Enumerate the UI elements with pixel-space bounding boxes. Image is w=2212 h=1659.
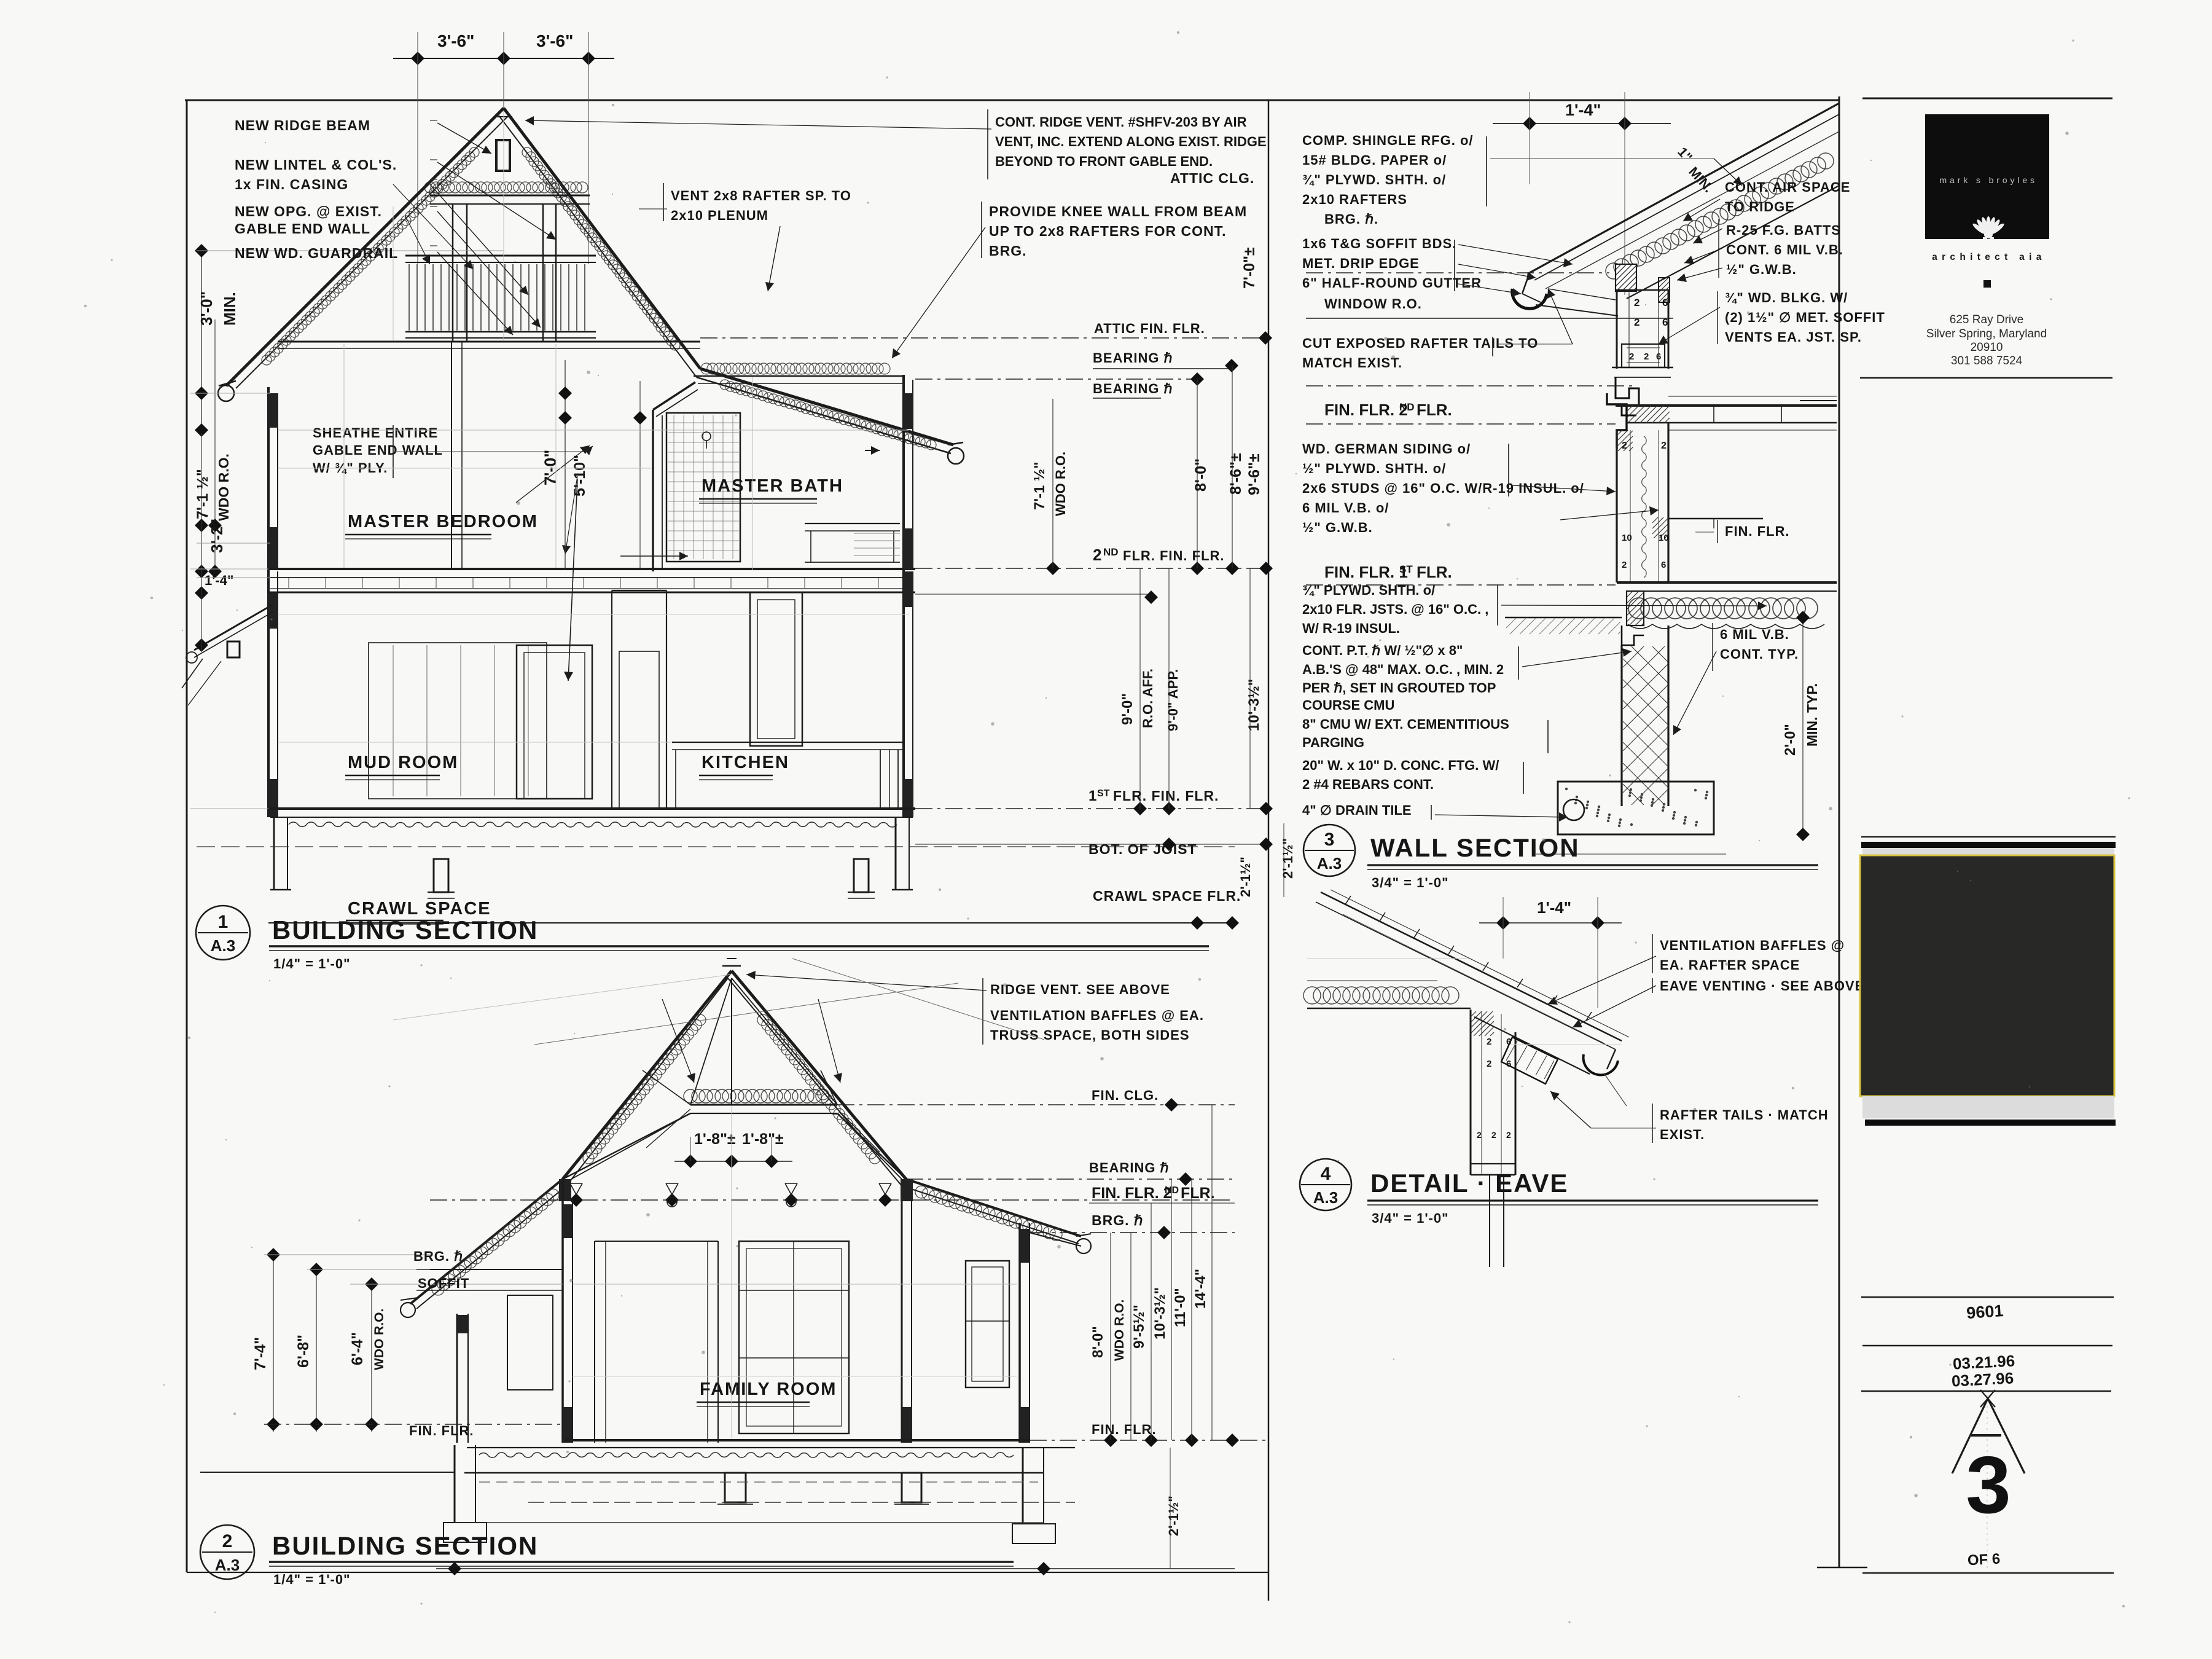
svg-text:PARGING: PARGING <box>1302 735 1364 750</box>
svg-text:FIN. FLR.: FIN. FLR. <box>1725 524 1790 539</box>
svg-text:3'-6": 3'-6" <box>437 31 474 50</box>
svg-text:1x FIN. CASING: 1x FIN. CASING <box>235 176 348 192</box>
svg-text:BRG. ℏ: BRG. ℏ <box>1092 1212 1143 1228</box>
svg-text:TO RIDGE: TO RIDGE <box>1725 199 1795 214</box>
svg-text:7'-1 ½": 7'-1 ½" <box>194 469 211 519</box>
svg-text:1'-8"±: 1'-8"± <box>694 1131 736 1148</box>
svg-text:FIN. FLR. 2: FIN. FLR. 2 <box>1092 1185 1172 1202</box>
svg-text:FIN. CLG.: FIN. CLG. <box>1092 1088 1159 1103</box>
svg-text:3'-2": 3'-2" <box>208 519 226 553</box>
svg-text:9'-6"±: 9'-6"± <box>1246 453 1263 495</box>
svg-text:7'-0"±: 7'-0"± <box>1241 247 1258 289</box>
svg-text:MET. DRIP EDGE: MET. DRIP EDGE <box>1302 256 1420 271</box>
svg-text:11'-0": 11'-0" <box>1172 1288 1189 1327</box>
svg-text:3/4" = 1'-0": 3/4" = 1'-0" <box>1372 1210 1449 1226</box>
svg-text:2'-1½": 2'-1½" <box>1238 857 1253 897</box>
svg-text:WD. GERMAN SIDING o/: WD. GERMAN SIDING o/ <box>1302 441 1471 457</box>
svg-text:BRG.: BRG. <box>989 243 1027 259</box>
svg-text:CONT. RIDGE VENT. #SHFV-203 BY: CONT. RIDGE VENT. #SHFV-203 BY AIR <box>995 114 1247 130</box>
svg-text:20910: 20910 <box>1971 341 2003 354</box>
svg-text:FIN. FLR.: FIN. FLR. <box>409 1423 474 1438</box>
svg-text:2x6 STUDS @ 16" O.C. W/R-19 IN: 2x6 STUDS @ 16" O.C. W/R-19 INSUL. o/ <box>1302 480 1584 496</box>
svg-text:½" G.W.B.: ½" G.W.B. <box>1302 520 1373 535</box>
svg-text:3'-0": 3'-0" <box>197 291 216 326</box>
svg-text:¾" WD. BLKG. W/: ¾" WD. BLKG. W/ <box>1725 290 1848 305</box>
svg-text:FLR.: FLR. <box>1417 401 1452 419</box>
svg-text:CONT. TYP.: CONT. TYP. <box>1720 646 1799 662</box>
svg-text:14'-4": 14'-4" <box>1192 1269 1209 1309</box>
svg-text:VENTILATION BAFFLES @: VENTILATION BAFFLES @ <box>1660 938 1845 953</box>
svg-text:R.O. AFF.: R.O. AFF. <box>1140 669 1155 728</box>
svg-text:FIN. FLR. 1: FIN. FLR. 1 <box>1324 563 1408 581</box>
svg-text:TRUSS SPACE, BOTH SIDES: TRUSS SPACE, BOTH SIDES <box>990 1027 1190 1043</box>
svg-text:ND: ND <box>1399 401 1415 413</box>
svg-text:CONT. AIR SPACE: CONT. AIR SPACE <box>1725 179 1850 195</box>
svg-text:6'-4": 6'-4" <box>349 1332 366 1365</box>
svg-text:15# BLDG. PAPER o/: 15# BLDG. PAPER o/ <box>1302 152 1447 168</box>
svg-text:8'-6"±: 8'-6"± <box>1227 453 1245 495</box>
svg-text:BRG. ℏ.: BRG. ℏ. <box>1324 211 1378 227</box>
svg-text:SOFFIT: SOFFIT <box>418 1276 469 1291</box>
svg-text:FLR. FIN. FLR.: FLR. FIN. FLR. <box>1113 788 1219 804</box>
svg-text:2: 2 <box>1487 1037 1491 1047</box>
svg-text:2: 2 <box>1622 441 1627 451</box>
svg-text:1/4" = 1'-0": 1/4" = 1'-0" <box>273 956 351 971</box>
svg-text:GABLE END WALL: GABLE END WALL <box>313 442 443 458</box>
svg-text:2: 2 <box>1491 1130 1496 1140</box>
svg-text:10'-3½": 10'-3½" <box>1246 679 1262 731</box>
svg-text:NEW OPG. @ EXIST.: NEW OPG. @ EXIST. <box>235 203 382 219</box>
svg-text:BUILDING SECTION: BUILDING SECTION <box>272 916 538 944</box>
svg-text:2x10 RAFTERS: 2x10 RAFTERS <box>1302 192 1407 207</box>
svg-text:FIN. FLR.: FIN. FLR. <box>1092 1422 1157 1437</box>
svg-text:4: 4 <box>1321 1164 1331 1184</box>
svg-text:9'-0": 9'-0" <box>1119 693 1136 725</box>
svg-text:5'-10": 5'-10" <box>571 455 588 496</box>
svg-text:8'-0": 8'-0" <box>1090 1326 1106 1358</box>
svg-text:EXIST.: EXIST. <box>1660 1127 1705 1142</box>
svg-text:2x10 PLENUM: 2x10 PLENUM <box>671 208 768 223</box>
svg-text:A.3: A.3 <box>211 936 235 955</box>
svg-text:301 588 7524: 301 588 7524 <box>1951 355 2023 367</box>
svg-text:2: 2 <box>1629 351 1634 362</box>
svg-text:RAFTER TAILS · MATCH: RAFTER TAILS · MATCH <box>1660 1107 1829 1123</box>
svg-text:BOT. OF JOIST: BOT. OF JOIST <box>1088 841 1197 857</box>
svg-text:1'-8"±: 1'-8"± <box>742 1131 784 1148</box>
svg-text:8" CMU W/ EXT. CEMENTITIOUS: 8" CMU W/ EXT. CEMENTITIOUS <box>1302 716 1509 732</box>
svg-text:2: 2 <box>1644 351 1649 362</box>
svg-text:2: 2 <box>1477 1130 1482 1140</box>
svg-text:2x10 FLR. JSTS. @ 16" O.C. ,: 2x10 FLR. JSTS. @ 16" O.C. , <box>1302 602 1488 617</box>
svg-text:WINDOW R.O.: WINDOW R.O. <box>1324 296 1422 312</box>
svg-text:RIDGE VENT. SEE ABOVE: RIDGE VENT. SEE ABOVE <box>990 982 1170 997</box>
svg-text:1/4" = 1'-0": 1/4" = 1'-0" <box>273 1572 351 1587</box>
svg-text:1'-4": 1'-4" <box>205 573 233 588</box>
svg-text:BUILDING SECTION: BUILDING SECTION <box>272 1531 538 1560</box>
svg-text:m a r k s b r o y l e s: m a r k s b r o y l e s <box>1939 175 2034 185</box>
svg-text:2'-1½": 2'-1½" <box>1166 1496 1181 1536</box>
svg-text:1'-4": 1'-4" <box>1565 101 1601 119</box>
svg-text:FLR. FIN. FLR.: FLR. FIN. FLR. <box>1123 548 1225 563</box>
svg-text:7'-4": 7'-4" <box>252 1337 269 1370</box>
svg-text:a r c h i t e c t a i a: a r c h i t e c t a i a <box>1932 252 2042 262</box>
svg-text:MATCH EXIST.: MATCH EXIST. <box>1302 355 1402 371</box>
svg-text:A.3: A.3 <box>1317 854 1342 873</box>
svg-text:¾" PLYWD. SHTH. o/: ¾" PLYWD. SHTH. o/ <box>1302 582 1435 598</box>
svg-text:ND: ND <box>1103 546 1119 558</box>
svg-text:2: 2 <box>1622 560 1627 570</box>
svg-text:6: 6 <box>1662 297 1668 308</box>
svg-text:OF 6: OF 6 <box>1967 1551 2001 1569</box>
svg-text:WALL SECTION: WALL SECTION <box>1370 833 1580 862</box>
svg-text:ST: ST <box>1097 788 1110 799</box>
svg-text:R-25 F.G. BATTS: R-25 F.G. BATTS <box>1726 222 1841 238</box>
svg-text:1'-4": 1'-4" <box>1537 898 1571 917</box>
svg-text:2: 2 <box>222 1531 233 1551</box>
svg-text:BEARING ℏ: BEARING ℏ <box>1093 381 1173 396</box>
svg-text:WDO R.O.: WDO R.O. <box>216 453 232 521</box>
svg-text:ATTIC FIN. FLR.: ATTIC FIN. FLR. <box>1094 321 1205 336</box>
svg-text:A.3: A.3 <box>1313 1188 1338 1207</box>
svg-text:KITCHEN: KITCHEN <box>702 753 789 772</box>
svg-text:2 #4 REBARS CONT.: 2 #4 REBARS CONT. <box>1302 777 1434 792</box>
svg-text:NEW RIDGE BEAM: NEW RIDGE BEAM <box>235 117 370 133</box>
svg-text:NEW WD. GUARDRAIL: NEW WD. GUARDRAIL <box>235 245 398 261</box>
svg-text:03.27.96: 03.27.96 <box>1951 1368 2014 1390</box>
svg-text:WDO R.O.: WDO R.O. <box>1053 452 1068 516</box>
svg-text:Silver Spring, Maryland: Silver Spring, Maryland <box>1926 327 2047 340</box>
svg-text:2: 2 <box>1093 546 1101 564</box>
svg-text:6 MIL V.B. o/: 6 MIL V.B. o/ <box>1302 500 1389 516</box>
svg-text:A.3: A.3 <box>215 1556 240 1574</box>
svg-text:1": 1" <box>1675 144 1695 165</box>
svg-text:CONT. 6 MIL V.B.: CONT. 6 MIL V.B. <box>1726 242 1843 257</box>
svg-text:MASTER BATH: MASTER BATH <box>702 476 843 496</box>
svg-text:FLR.: FLR. <box>1417 563 1452 581</box>
svg-text:2: 2 <box>1661 441 1667 451</box>
svg-text:½" G.W.B.: ½" G.W.B. <box>1726 262 1797 277</box>
svg-text:SHEATHE ENTIRE: SHEATHE ENTIRE <box>313 425 438 441</box>
svg-text:6: 6 <box>1656 351 1661 362</box>
svg-text:3: 3 <box>1966 1440 2011 1530</box>
svg-text:MASTER BEDROOM: MASTER BEDROOM <box>348 512 538 531</box>
svg-text:FLR.: FLR. <box>1181 1185 1215 1202</box>
svg-text:COURSE CMU: COURSE CMU <box>1302 697 1394 713</box>
svg-text:8'-0": 8'-0" <box>1192 458 1210 492</box>
svg-text:FIN. FLR. 2: FIN. FLR. 2 <box>1324 401 1408 419</box>
svg-text:ND: ND <box>1165 1185 1179 1196</box>
svg-text:6: 6 <box>1661 560 1666 570</box>
svg-text:BRG. ℏ: BRG. ℏ <box>413 1249 463 1264</box>
svg-text:20" W. x 10" D. CONC. FTG. W/: 20" W. x 10" D. CONC. FTG. W/ <box>1302 758 1499 773</box>
svg-text:BEARING ℏ: BEARING ℏ <box>1093 350 1173 366</box>
svg-text:CUT EXPOSED RAFTER TAILS TO: CUT EXPOSED RAFTER TAILS TO <box>1302 335 1538 351</box>
svg-text:9'-0" APP.: 9'-0" APP. <box>1165 669 1181 731</box>
svg-text:625 Ray Drive: 625 Ray Drive <box>1950 313 2023 326</box>
svg-text:¾" PLYWD. SHTH. o/: ¾" PLYWD. SHTH. o/ <box>1302 172 1446 187</box>
svg-text:NEW LINTEL & COL'S.: NEW LINTEL & COL'S. <box>235 157 397 173</box>
svg-text:EA. RAFTER SPACE: EA. RAFTER SPACE <box>1660 957 1800 973</box>
svg-text:W/ R-19 INSUL.: W/ R-19 INSUL. <box>1302 621 1400 636</box>
svg-text:10: 10 <box>1659 533 1669 543</box>
svg-text:½" PLYWD. SHTH. o/: ½" PLYWD. SHTH. o/ <box>1302 461 1446 476</box>
svg-text:2: 2 <box>1506 1130 1511 1140</box>
svg-text:7'-0": 7'-0" <box>541 450 560 485</box>
svg-text:VENTILATION BAFFLES @ EA.: VENTILATION BAFFLES @ EA. <box>990 1008 1204 1023</box>
svg-text:1: 1 <box>1088 788 1096 804</box>
svg-text:3'-6": 3'-6" <box>536 31 573 50</box>
svg-text:ATTIC CLG.: ATTIC CLG. <box>1170 170 1254 186</box>
svg-text:MUD ROOM: MUD ROOM <box>348 753 458 772</box>
svg-text:MIN.: MIN. <box>221 292 239 326</box>
svg-text:2: 2 <box>1487 1059 1491 1069</box>
svg-text:3/4" = 1'-0": 3/4" = 1'-0" <box>1372 875 1449 890</box>
svg-text:GABLE END WALL: GABLE END WALL <box>235 221 370 237</box>
svg-text:ST: ST <box>1399 563 1413 575</box>
svg-text:DETAIL · EAVE: DETAIL · EAVE <box>1370 1169 1568 1198</box>
svg-text:1: 1 <box>218 912 229 932</box>
svg-text:CRAWL SPACE FLR.: CRAWL SPACE FLR. <box>1093 888 1241 904</box>
svg-text:VENT, INC. EXTEND ALONG EXIST: VENT, INC. EXTEND ALONG EXIST. RIDGE <box>995 134 1267 149</box>
svg-text:9'-5½": 9'-5½" <box>1131 1304 1147 1349</box>
svg-text:A.B.'S @ 48" MAX. O.C. , MIN.: A.B.'S @ 48" MAX. O.C. , MIN. 2 <box>1302 662 1504 677</box>
svg-text:BEYOND TO FRONT GABLE END.: BEYOND TO FRONT GABLE END. <box>995 154 1213 169</box>
svg-text:10'-3½": 10'-3½" <box>1152 1287 1168 1339</box>
svg-text:PROVIDE KNEE WALL FROM BEAM: PROVIDE KNEE WALL FROM BEAM <box>989 203 1247 219</box>
svg-text:10: 10 <box>1622 533 1632 543</box>
svg-text:BEARING ℏ: BEARING ℏ <box>1089 1160 1170 1175</box>
svg-text:2: 2 <box>1634 297 1639 308</box>
svg-text:MIN. TYP.: MIN. TYP. <box>1804 683 1820 747</box>
svg-text:2'-0": 2'-0" <box>1782 724 1799 756</box>
svg-text:VENTS EA. JST. SP.: VENTS EA. JST. SP. <box>1725 329 1862 345</box>
svg-text:3: 3 <box>1324 829 1335 850</box>
svg-text:4" ∅ DRAIN TILE: 4" ∅ DRAIN TILE <box>1302 802 1412 818</box>
svg-text:CONT. P.T. ℏ W/ ½"∅ x 8": CONT. P.T. ℏ W/ ½"∅ x 8" <box>1302 643 1463 658</box>
svg-text:UP TO 2x8 RAFTERS FOR CONT.: UP TO 2x8 RAFTERS FOR CONT. <box>989 223 1227 239</box>
svg-text:6'-8": 6'-8" <box>295 1335 312 1368</box>
svg-text:FAMILY ROOM: FAMILY ROOM <box>700 1379 837 1399</box>
svg-text:VENT 2x8 RAFTER SP. TO: VENT 2x8 RAFTER SP. TO <box>671 188 851 203</box>
svg-text:1x6 T&G SOFFIT BDS.: 1x6 T&G SOFFIT BDS. <box>1302 236 1456 251</box>
svg-text:WDO R.O.: WDO R.O. <box>1112 1300 1127 1361</box>
svg-text:2'-1½": 2'-1½" <box>1280 838 1296 879</box>
svg-text:PER ℏ, SET IN GROUTED TOP: PER ℏ, SET IN GROUTED TOP <box>1302 680 1496 696</box>
svg-text:EAVE VENTING · SEE ABOVE: EAVE VENTING · SEE ABOVE <box>1660 978 1864 994</box>
svg-text:9601: 9601 <box>1966 1301 2004 1322</box>
svg-text:6 MIL V.B.: 6 MIL V.B. <box>1720 627 1789 642</box>
svg-text:WDO R.O.: WDO R.O. <box>372 1309 386 1370</box>
svg-text:7'-1 ½": 7'-1 ½" <box>1031 462 1048 510</box>
svg-text:COMP. SHINGLE RFG. o/: COMP. SHINGLE RFG. o/ <box>1302 133 1474 148</box>
